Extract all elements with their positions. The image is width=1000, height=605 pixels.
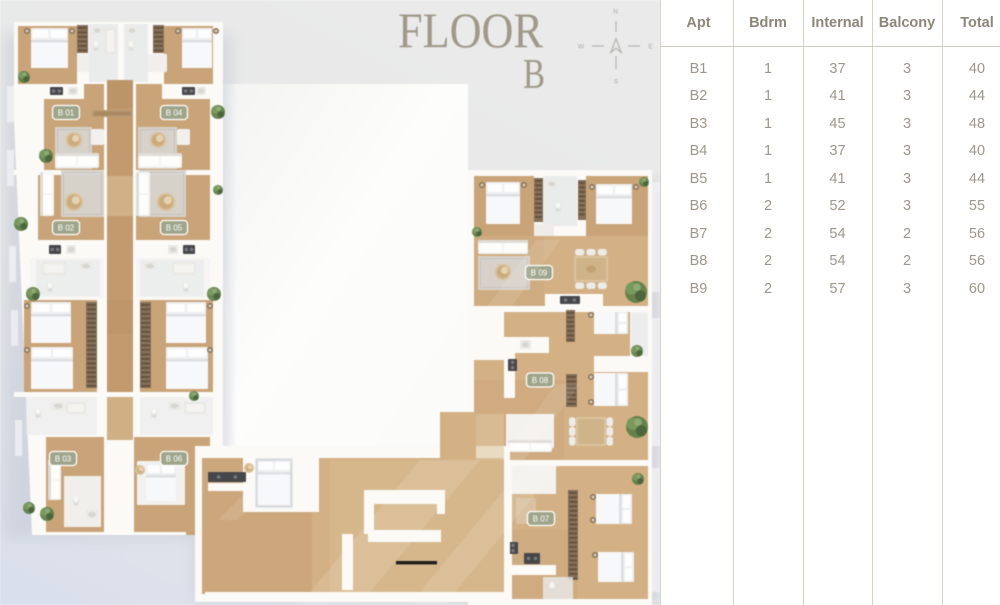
svg-text:B 08: B 08 xyxy=(532,376,549,385)
svg-text:B 05: B 05 xyxy=(166,224,183,233)
svg-text:B 02: B 02 xyxy=(58,224,75,233)
svg-text:B 06: B 06 xyxy=(166,455,183,464)
svg-text:B 03: B 03 xyxy=(55,455,72,464)
svg-text:B: B xyxy=(523,52,545,98)
svg-text:B 04: B 04 xyxy=(166,109,183,118)
svg-text:B 01: B 01 xyxy=(58,109,75,118)
svg-text:S: S xyxy=(614,79,619,86)
svg-text:FLOOR: FLOOR xyxy=(398,2,544,58)
svg-text:W: W xyxy=(578,44,585,51)
svg-text:E: E xyxy=(648,44,653,51)
svg-text:N: N xyxy=(613,9,618,16)
svg-text:B 07: B 07 xyxy=(533,515,550,524)
